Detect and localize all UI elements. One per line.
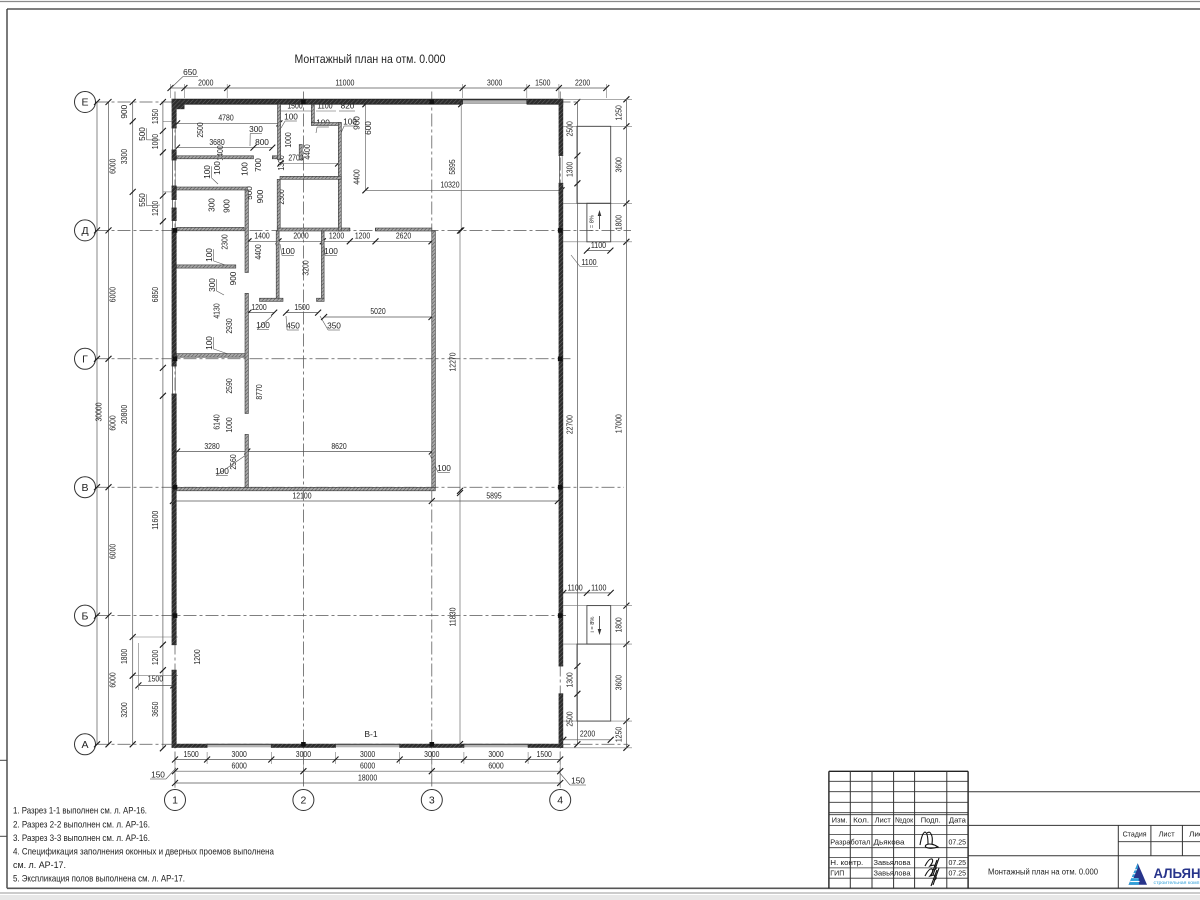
svg-text:6000: 6000	[488, 761, 504, 771]
svg-text:550: 550	[137, 193, 147, 207]
svg-text:5020: 5020	[370, 306, 386, 316]
svg-text:Кол.: Кол.	[853, 815, 869, 824]
svg-text:100: 100	[204, 336, 214, 350]
svg-text:АЛЬЯН: АЛЬЯН	[1154, 866, 1200, 881]
svg-text:3650: 3650	[150, 701, 160, 717]
svg-text:строительная комп: строительная комп	[1154, 881, 1200, 886]
svg-text:5. Экспликация полов выполнена: 5. Экспликация полов выполнена см. л. АР…	[13, 874, 185, 884]
svg-text:Лист: Лист	[1159, 830, 1175, 839]
svg-text:№док: №док	[895, 815, 914, 824]
svg-text:800: 800	[255, 137, 269, 147]
svg-text:Стадия: Стадия	[1123, 830, 1147, 839]
svg-text:20800: 20800	[119, 405, 129, 424]
svg-text:4: 4	[557, 795, 563, 807]
svg-text:8620: 8620	[331, 441, 347, 451]
svg-text:2590: 2590	[224, 378, 234, 394]
svg-text:Д: Д	[81, 225, 88, 237]
svg-text:6000: 6000	[108, 415, 118, 431]
svg-text:1300: 1300	[565, 161, 575, 177]
svg-text:Дьякова: Дьякова	[874, 837, 906, 846]
svg-text:3000: 3000	[424, 749, 440, 759]
svg-text:1: 1	[172, 795, 178, 807]
svg-text:6000: 6000	[108, 543, 118, 559]
svg-text:1000: 1000	[224, 417, 234, 433]
svg-text:В: В	[81, 482, 88, 494]
svg-text:6000: 6000	[108, 672, 118, 688]
svg-text:5895: 5895	[486, 490, 502, 500]
svg-text:2000: 2000	[293, 231, 309, 241]
svg-text:100: 100	[437, 463, 451, 473]
svg-text:350: 350	[327, 321, 341, 331]
svg-text:3000: 3000	[296, 749, 312, 759]
svg-text:700: 700	[253, 158, 263, 172]
svg-text:Лис: Лис	[1189, 830, 1200, 839]
svg-text:600: 600	[363, 121, 373, 135]
svg-text:2000: 2000	[198, 77, 214, 87]
svg-text:1500: 1500	[183, 749, 199, 759]
svg-text:6140: 6140	[212, 414, 222, 430]
svg-text:2500: 2500	[195, 122, 205, 138]
svg-text:i = 8%: i = 8%	[590, 617, 596, 633]
svg-text:11830: 11830	[448, 607, 458, 626]
svg-text:100: 100	[281, 246, 295, 256]
svg-text:300: 300	[207, 198, 217, 212]
svg-text:900: 900	[119, 104, 129, 118]
svg-text:А: А	[81, 739, 88, 751]
svg-text:1500: 1500	[537, 749, 553, 759]
svg-text:1500: 1500	[148, 674, 164, 684]
svg-text:1. Разрез 1-1 выполнен см. л.: 1. Разрез 1-1 выполнен см. л. АР-16.	[13, 806, 147, 816]
svg-text:900: 900	[222, 199, 232, 213]
svg-text:1800: 1800	[613, 215, 623, 231]
svg-text:1350: 1350	[150, 109, 160, 125]
svg-text:900: 900	[255, 189, 265, 203]
svg-text:3200: 3200	[301, 260, 311, 276]
svg-text:3680: 3680	[209, 137, 225, 147]
svg-text:6000: 6000	[108, 158, 118, 174]
svg-text:22700: 22700	[565, 415, 575, 434]
svg-text:6000: 6000	[232, 761, 248, 771]
svg-text:2200: 2200	[580, 729, 596, 739]
svg-text:ГИП: ГИП	[830, 869, 844, 878]
svg-text:1500: 1500	[535, 77, 551, 87]
svg-text:Монтажный план на отм. 0.000: Монтажный план на отм. 0.000	[295, 52, 446, 66]
svg-text:3600: 3600	[613, 675, 623, 691]
svg-text:100: 100	[284, 112, 298, 122]
svg-text:100: 100	[324, 246, 338, 256]
svg-text:3000: 3000	[360, 749, 376, 759]
svg-text:Б: Б	[82, 610, 89, 622]
svg-text:10320: 10320	[440, 180, 459, 190]
svg-text:1300: 1300	[565, 672, 575, 688]
svg-text:2. Разрез 2-2 выполнен см. л.: 2. Разрез 2-2 выполнен см. л. АР-16.	[13, 819, 150, 829]
svg-text:300: 300	[249, 124, 263, 134]
svg-text:2930: 2930	[224, 318, 234, 334]
svg-text:Монтажный план на отм. 0.000: Монтажный план на отм. 0.000	[988, 868, 1099, 877]
svg-text:3600: 3600	[613, 157, 623, 173]
svg-text:см. л. АР-17.: см. л. АР-17.	[13, 860, 66, 870]
svg-text:2: 2	[300, 795, 306, 807]
svg-text:2620: 2620	[396, 231, 412, 241]
svg-text:Подп.: Подп.	[921, 815, 941, 824]
svg-text:2300: 2300	[220, 234, 230, 250]
svg-text:5895: 5895	[447, 159, 457, 175]
svg-text:1800: 1800	[119, 648, 129, 664]
svg-text:1250: 1250	[613, 727, 623, 743]
svg-text:1200: 1200	[150, 200, 160, 216]
svg-text:3000: 3000	[488, 749, 504, 759]
svg-text:6000: 6000	[108, 287, 118, 303]
svg-text:150: 150	[571, 776, 585, 786]
svg-text:17000: 17000	[613, 414, 623, 433]
svg-text:4400: 4400	[352, 169, 362, 185]
svg-text:300: 300	[207, 278, 217, 292]
svg-text:650: 650	[183, 67, 197, 77]
svg-text:18000: 18000	[358, 772, 377, 782]
svg-text:Завьялова: Завьялова	[874, 858, 912, 867]
svg-text:Изм.: Изм.	[832, 815, 848, 824]
svg-text:1000: 1000	[150, 134, 160, 150]
svg-text:6000: 6000	[360, 761, 376, 771]
svg-text:450: 450	[286, 321, 300, 331]
svg-text:8770: 8770	[254, 384, 264, 400]
svg-text:1400: 1400	[254, 231, 270, 241]
svg-text:900: 900	[228, 271, 238, 285]
svg-text:3: 3	[429, 795, 435, 807]
svg-text:11000: 11000	[335, 77, 354, 87]
svg-text:1100: 1100	[581, 257, 597, 267]
svg-text:Лист: Лист	[875, 815, 891, 824]
svg-text:100: 100	[240, 162, 250, 176]
svg-text:В-1: В-1	[364, 729, 378, 739]
svg-text:1500: 1500	[294, 302, 310, 312]
svg-text:500: 500	[137, 127, 147, 141]
svg-text:3000: 3000	[232, 749, 248, 759]
svg-text:1800: 1800	[613, 617, 623, 633]
svg-text:1100: 1100	[591, 582, 607, 592]
svg-text:1000: 1000	[283, 132, 293, 148]
svg-text:150: 150	[151, 770, 165, 780]
svg-text:4400: 4400	[253, 244, 263, 260]
svg-text:3300: 3300	[119, 149, 129, 165]
svg-text:Разработал: Разработал	[830, 837, 870, 846]
svg-text:1200: 1200	[355, 231, 371, 241]
svg-text:100: 100	[212, 161, 222, 175]
svg-text:07.25: 07.25	[949, 869, 967, 878]
svg-text:1100: 1100	[567, 582, 583, 592]
svg-text:900: 900	[352, 116, 362, 130]
svg-text:2200: 2200	[575, 77, 591, 87]
svg-text:4130: 4130	[212, 303, 222, 319]
svg-text:6850: 6850	[150, 287, 160, 303]
svg-text:100: 100	[204, 248, 214, 262]
svg-text:07.25: 07.25	[949, 858, 967, 867]
svg-text:100: 100	[202, 165, 212, 179]
svg-text:2500: 2500	[565, 121, 575, 137]
svg-text:3. Разрез 3-3 выполнен см. л.: 3. Разрез 3-3 выполнен см. л. АР-16.	[13, 833, 150, 843]
svg-text:3000: 3000	[487, 77, 503, 87]
svg-text:4780: 4780	[218, 113, 234, 123]
svg-text:Дата: Дата	[949, 815, 967, 824]
svg-text:3280: 3280	[204, 441, 220, 451]
svg-text:Н. контр.: Н. контр.	[830, 858, 863, 867]
svg-text:30000: 30000	[94, 402, 104, 421]
svg-text:1200: 1200	[251, 302, 267, 312]
svg-text:1250: 1250	[613, 105, 623, 121]
svg-text:1200: 1200	[150, 650, 160, 666]
svg-text:Е: Е	[81, 97, 88, 109]
svg-text:1200: 1200	[192, 649, 202, 665]
svg-text:12270: 12270	[448, 352, 458, 371]
svg-text:i = 8%: i = 8%	[590, 215, 596, 231]
svg-text:Завьялова: Завьялова	[874, 869, 912, 878]
svg-text:07.25: 07.25	[949, 837, 967, 846]
svg-text:3200: 3200	[119, 702, 129, 718]
svg-text:1200: 1200	[329, 231, 345, 241]
svg-text:11600: 11600	[150, 510, 160, 529]
svg-text:12100: 12100	[292, 490, 311, 500]
svg-text:Г: Г	[82, 354, 88, 366]
svg-text:2500: 2500	[565, 711, 575, 727]
svg-text:4. Спецификация заполнения око: 4. Спецификация заполнения оконных и две…	[13, 847, 275, 857]
